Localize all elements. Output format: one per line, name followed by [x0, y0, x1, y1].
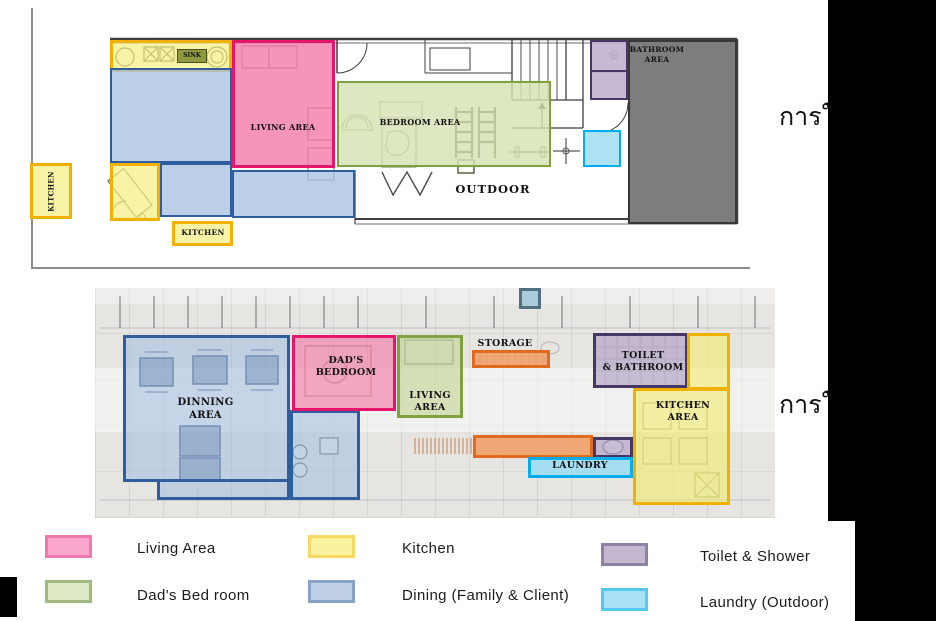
black-mask-bottom-left — [0, 577, 17, 617]
frame-line-horizontal — [31, 267, 750, 269]
legend-swatch-dads-bedroom — [45, 580, 92, 603]
legend-label-dining: Dining (Family & Client) — [402, 587, 569, 604]
top-shower-divider — [592, 70, 626, 72]
top-bathroom-area-block — [628, 40, 737, 224]
bottom-entry-square — [519, 288, 541, 309]
top-outdoor-label: OUTDOOR — [443, 182, 543, 197]
top-kitchen-left-label: KITCHEN — [46, 169, 55, 215]
top-living-area-overlay — [232, 40, 335, 168]
top-bedroom-label: BEDROOM AREA — [375, 117, 465, 127]
legend-swatch-kitchen — [308, 535, 355, 558]
legend-swatch-dining — [308, 580, 355, 603]
bottom-living-label: LIVING AREA — [404, 390, 456, 415]
black-mask-right — [828, 0, 936, 521]
legend-label-dads-bedroom: Dad's Bed room — [137, 587, 250, 604]
top-dining-overlay-main — [110, 68, 232, 163]
top-dining-overlay-strip1 — [160, 163, 232, 217]
legend: Living Area Kitchen Toilet & Shower Dad'… — [0, 521, 855, 621]
frame-line-vertical — [31, 8, 33, 268]
sink-badge: SINK — [177, 49, 207, 63]
bottom-kitchen-overlay-upper — [687, 333, 730, 390]
bottom-laundry-label: LAUNDRY — [545, 460, 615, 472]
legend-swatch-living-area — [45, 535, 92, 558]
top-kitchen-bottom-label: KITCHEN — [174, 228, 232, 238]
legend-swatch-laundry — [601, 588, 648, 611]
sink-label: SINK — [183, 52, 201, 59]
bottom-dads-bedroom-label: DAD'S BEDROOM — [310, 355, 382, 380]
bottom-counter-bar-overlay — [473, 435, 593, 458]
bottom-dinning-label: DINNING AREA — [168, 396, 243, 422]
bottom-washer-box-overlay — [593, 437, 633, 458]
legend-label-toilet-shower: Toilet & Shower — [700, 548, 810, 565]
top-kitchen-corner-overlay — [110, 163, 160, 221]
top-living-label: LIVING AREA — [243, 122, 323, 132]
bottom-dinning-overlay-strip — [157, 479, 290, 500]
slide-canvas: SINK LIVING AREA BEDROOM AREA OUTDOOR BA… — [0, 0, 936, 621]
bottom-storage-bar-overlay — [472, 350, 550, 368]
bottom-kitchen-label: KITCHEN AREA — [652, 400, 714, 425]
bottom-dinning-overlay-kitchenette — [290, 410, 360, 500]
black-mask-bottom-right — [855, 521, 936, 621]
legend-label-laundry: Laundry (Outdoor) — [700, 594, 829, 611]
bottom-toilet-label: TOILET & BATHROOM — [600, 350, 686, 375]
legend-label-living-area: Living Area — [137, 540, 216, 557]
top-dining-overlay-strip2 — [232, 170, 355, 218]
top-laundry-square-overlay — [583, 130, 621, 167]
legend-label-kitchen: Kitchen — [402, 540, 455, 557]
legend-swatch-toilet-shower — [601, 543, 648, 566]
top-bathroom-label: BATHROOM AREA — [622, 45, 692, 65]
bottom-storage-label: STORAGE — [475, 338, 535, 350]
